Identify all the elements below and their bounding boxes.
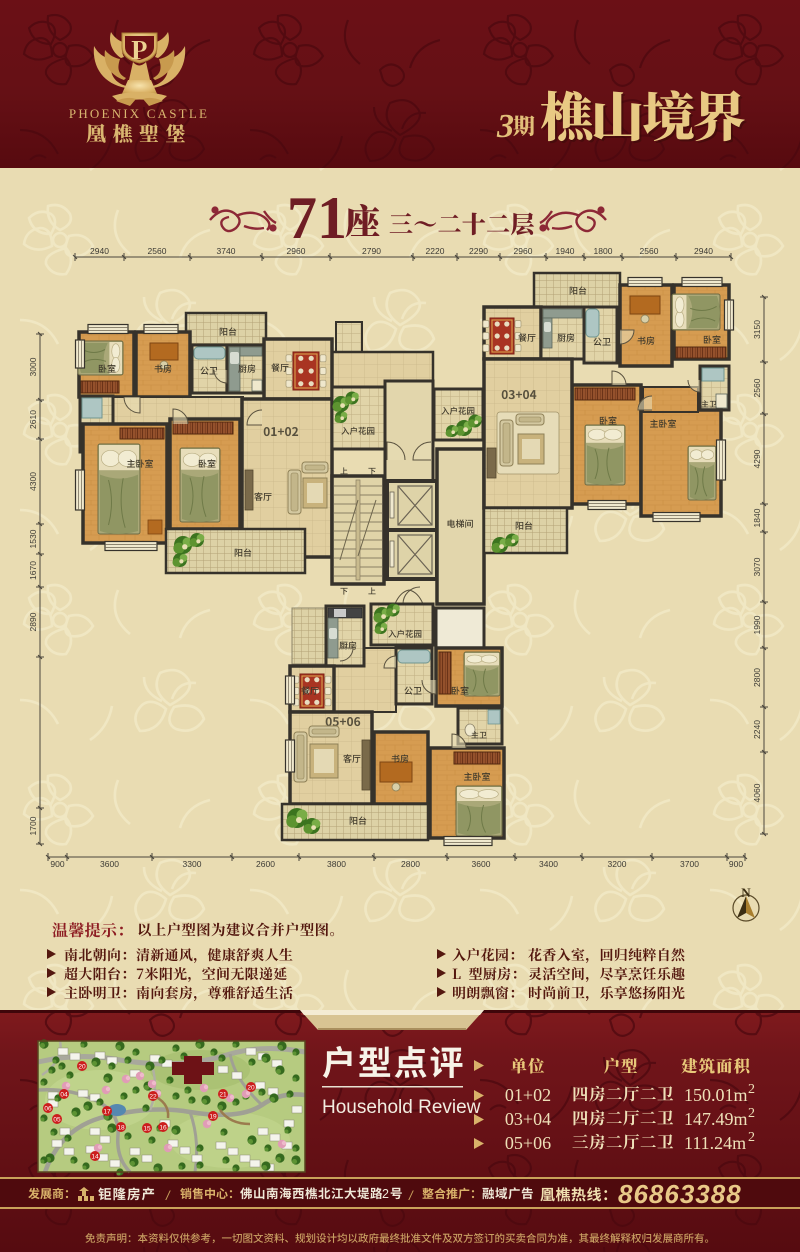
svg-text:3: 3 <box>496 108 514 145</box>
svg-text:16: 16 <box>159 1124 167 1131</box>
svg-text:1800: 1800 <box>594 246 613 256</box>
svg-text:2790: 2790 <box>362 246 381 256</box>
svg-text:4300: 4300 <box>28 472 38 491</box>
svg-text:111.24m: 111.24m <box>684 1133 746 1153</box>
svg-text:3200: 3200 <box>608 859 627 869</box>
svg-text:2800: 2800 <box>752 668 762 687</box>
svg-text:2800: 2800 <box>401 859 420 869</box>
svg-text:22: 22 <box>149 1093 157 1100</box>
svg-text:2: 2 <box>748 1082 755 1097</box>
svg-text:900: 900 <box>729 859 743 869</box>
svg-text:2960: 2960 <box>287 246 306 256</box>
svg-text:3000: 3000 <box>28 357 38 376</box>
svg-text:N: N <box>741 885 751 900</box>
svg-text:1940: 1940 <box>556 246 575 256</box>
svg-text:06: 06 <box>44 1105 52 1112</box>
svg-text:05: 05 <box>53 1116 61 1123</box>
svg-text:3150: 3150 <box>752 320 762 339</box>
svg-text:3800: 3800 <box>327 859 346 869</box>
svg-text:2: 2 <box>382 1187 389 1201</box>
svg-text:71: 71 <box>287 185 347 251</box>
svg-text:21: 21 <box>219 1091 227 1098</box>
svg-text:3600: 3600 <box>472 859 491 869</box>
svg-text:05+06: 05+06 <box>505 1133 551 1153</box>
svg-text:18: 18 <box>117 1124 125 1131</box>
svg-text:2940: 2940 <box>90 246 109 256</box>
svg-text:04: 04 <box>60 1091 68 1098</box>
svg-text:86863388: 86863388 <box>618 1179 742 1209</box>
svg-text:147.49m: 147.49m <box>684 1109 748 1129</box>
svg-text:3070: 3070 <box>752 557 762 576</box>
svg-text:2220: 2220 <box>426 246 445 256</box>
svg-text:2560: 2560 <box>752 378 762 397</box>
svg-text:3700: 3700 <box>680 859 699 869</box>
svg-text:2940: 2940 <box>694 246 713 256</box>
svg-text:01+02: 01+02 <box>505 1085 551 1105</box>
svg-text:2890: 2890 <box>28 612 38 631</box>
svg-text:3300: 3300 <box>183 859 202 869</box>
svg-text:4060: 4060 <box>752 783 762 802</box>
svg-text:3600: 3600 <box>100 859 119 869</box>
svg-text:2240: 2240 <box>752 720 762 739</box>
svg-text:17: 17 <box>103 1108 111 1115</box>
svg-text:2610: 2610 <box>28 410 38 429</box>
svg-text:1530: 1530 <box>28 529 38 548</box>
svg-text:1990: 1990 <box>752 615 762 634</box>
svg-text:3740: 3740 <box>217 246 236 256</box>
svg-text:20: 20 <box>78 1063 86 1070</box>
svg-text:03+04: 03+04 <box>505 1109 551 1129</box>
svg-text:15: 15 <box>143 1125 151 1132</box>
svg-text:2: 2 <box>748 1130 755 1145</box>
svg-text:Household Review: Household Review <box>322 1097 481 1118</box>
svg-text:1670: 1670 <box>28 561 38 580</box>
svg-text:2560: 2560 <box>640 246 659 256</box>
svg-text:2600: 2600 <box>256 859 275 869</box>
svg-text:19: 19 <box>209 1113 217 1120</box>
svg-text:2560: 2560 <box>148 246 167 256</box>
svg-text:1700: 1700 <box>28 816 38 835</box>
svg-text:900: 900 <box>50 859 64 869</box>
svg-text:14: 14 <box>91 1153 99 1160</box>
svg-text:150.01m: 150.01m <box>684 1085 748 1105</box>
svg-text:4290: 4290 <box>752 449 762 468</box>
svg-text:20: 20 <box>247 1084 255 1091</box>
svg-text:2: 2 <box>748 1106 755 1121</box>
svg-text:2290: 2290 <box>469 246 488 256</box>
svg-text:1840: 1840 <box>752 508 762 527</box>
svg-text:PHOENIX CASTLE: PHOENIX CASTLE <box>69 106 209 121</box>
svg-text:3400: 3400 <box>539 859 558 869</box>
svg-text:2960: 2960 <box>514 246 533 256</box>
